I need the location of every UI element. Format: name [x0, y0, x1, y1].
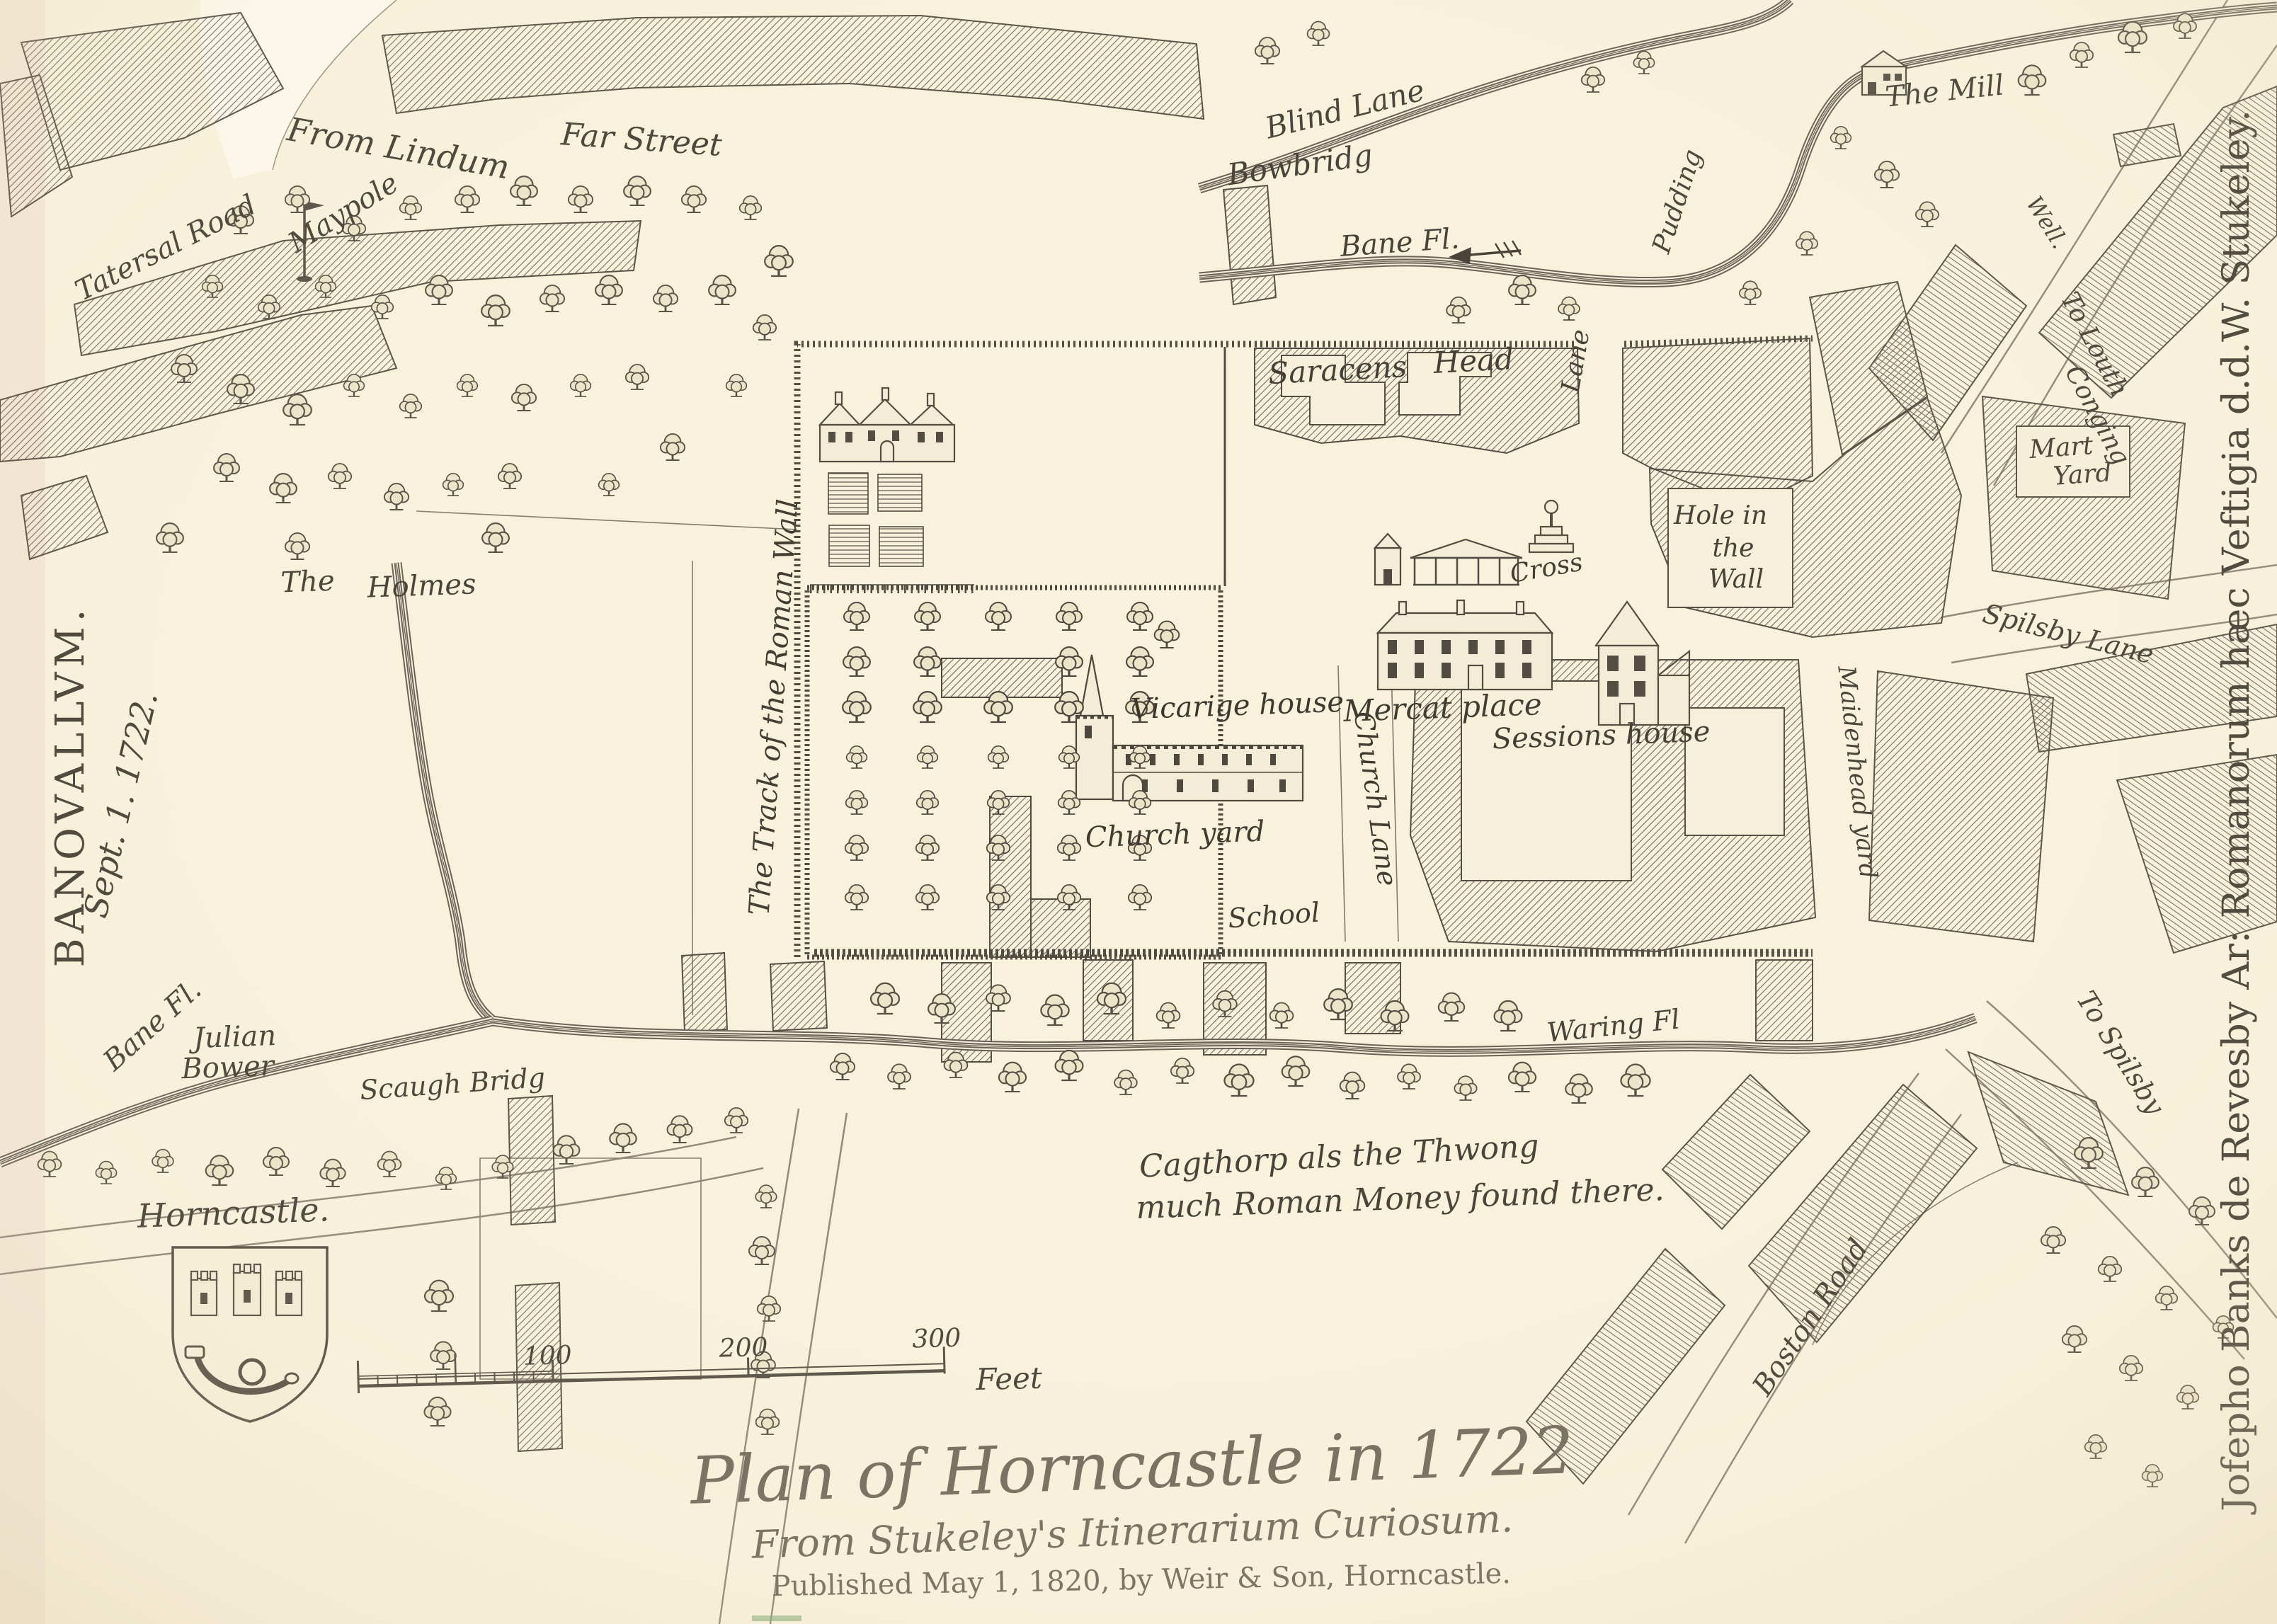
attribution-right-margin: Jofepho Banks de Revesby Ar: Romanorum h…: [2215, 110, 2258, 1515]
map-label-15: Wall: [1708, 565, 1764, 594]
scale-tick-100: 100: [523, 1341, 572, 1371]
map-label-39: Horncastle.: [136, 1190, 330, 1235]
map-label-10: Saracens: [1267, 349, 1408, 391]
horncastle-map-page: 100 200 300 Feet From LindumFar StreetMa…: [0, 0, 2277, 1624]
map-canvas: 100 200 300 Feet From LindumFar StreetMa…: [0, 0, 2277, 1624]
scale-tick-200: 200: [718, 1333, 768, 1363]
map-label-14: the: [1713, 534, 1754, 563]
manor-house-drawing: [820, 388, 954, 462]
map-label-13: Hole in: [1673, 501, 1767, 530]
scan-artifact: [752, 1616, 801, 1621]
mercat-place-building: [1378, 600, 1552, 690]
scale-unit-label: Feet: [975, 1361, 1043, 1397]
map-label-31: School: [1227, 897, 1320, 934]
map-label-28: Church yard: [1085, 816, 1265, 854]
scale-tick-300: 300: [912, 1324, 961, 1354]
map-label-11: Head: [1432, 341, 1514, 380]
map-label-24: The: [280, 565, 336, 600]
map-label-37: Bower: [181, 1050, 277, 1086]
map-label-19: Yard: [2053, 458, 2113, 491]
map-label-25: Holmes: [366, 568, 476, 604]
page-edge-tint: [0, 0, 45, 1624]
